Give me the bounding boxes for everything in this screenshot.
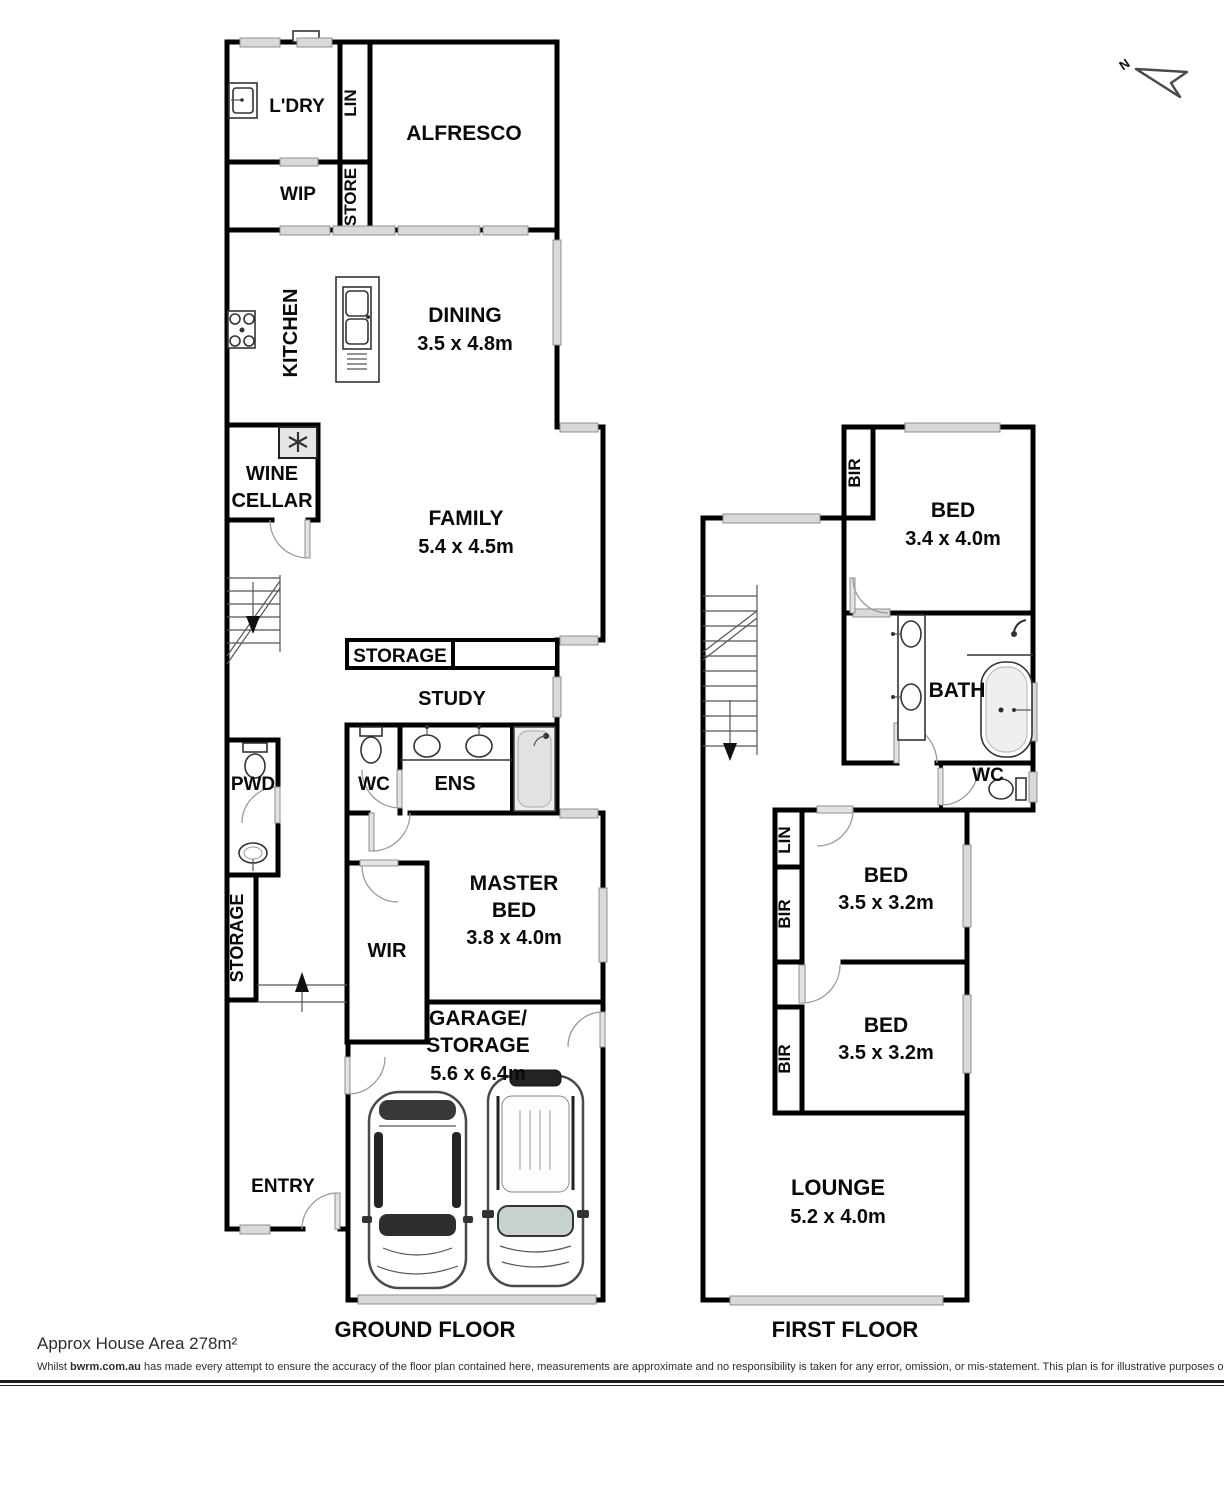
- room-label-bed2: BED: [864, 864, 908, 887]
- room-dims-master: 3.8 x 4.0m: [466, 927, 562, 949]
- bed2-door: [817, 806, 853, 846]
- wir-door: [360, 860, 398, 902]
- room-label-master-bed: BED: [492, 899, 536, 922]
- entry-steps-icon: [257, 972, 347, 1012]
- wine-fridge-icon: [279, 427, 317, 458]
- toilet-icon: [360, 727, 382, 763]
- room-dims-bed1: 3.4 x 4.0m: [905, 528, 1001, 550]
- room-label-bir2: BIR: [775, 899, 794, 928]
- car-suv-icon: [482, 1070, 589, 1286]
- bed1-door: [850, 578, 888, 613]
- room-dims-dining: 3.5 x 4.8m: [417, 333, 513, 355]
- room-label-pwd: PWD: [231, 774, 275, 795]
- room-label-storage-box: STORAGE: [353, 646, 447, 667]
- room-label-alfresco: ALFRESCO: [406, 122, 522, 145]
- master-hall-door: [369, 813, 410, 851]
- first-floor-plan: BIR BED 3.4 x 4.0m BATH WC LIN BIR BED 3…: [703, 423, 1037, 1342]
- staircase-first-floor-icon: [703, 585, 757, 761]
- garage-side-door: [568, 1012, 605, 1047]
- car-sedan-icon: [362, 1092, 473, 1288]
- north-label: N: [1116, 55, 1132, 73]
- room-label-garage-storage: STORAGE: [426, 1034, 529, 1057]
- room-label-study: STUDY: [418, 688, 486, 710]
- garage-internal-door: [345, 1057, 385, 1094]
- house-area-note: Approx House Area 278m²: [37, 1334, 1207, 1354]
- room-label-wc-ff: WC: [972, 765, 1004, 786]
- room-label-bir1: BIR: [845, 458, 864, 487]
- garage-door: [358, 1295, 596, 1304]
- room-dims-bed3: 3.5 x 3.2m: [838, 1042, 934, 1064]
- room-label-bed1: BED: [931, 499, 975, 522]
- room-label-lounge: LOUNGE: [791, 1175, 885, 1200]
- ensuite-shower-icon: [514, 727, 555, 811]
- shower-head-icon: [1011, 620, 1026, 637]
- room-label-bir3: BIR: [775, 1044, 794, 1073]
- room-label-storage-side: STORAGE: [227, 894, 247, 983]
- room-label-wip: WIP: [280, 184, 316, 205]
- footer-rule-thick: [0, 1380, 1224, 1383]
- room-label-lin: LIN: [341, 89, 360, 116]
- room-label-ens: ENS: [434, 773, 475, 795]
- island-bench-icon: [336, 277, 379, 382]
- room-label-wir: WIR: [368, 940, 407, 962]
- room-label-bed3: BED: [864, 1014, 908, 1037]
- room-dims-garage: 5.6 x 6.4m: [430, 1063, 526, 1085]
- bathtub-icon: [981, 662, 1032, 757]
- room-label-bath: BATH: [929, 679, 986, 702]
- room-label-store: STORE: [341, 168, 360, 226]
- disclaimer-brand: bwrm.com.au: [70, 1361, 141, 1373]
- room-label-cellar: CELLAR: [231, 490, 313, 512]
- stove-icon: [228, 311, 255, 348]
- first-floor-doors: [799, 578, 978, 1003]
- room-label-garage: GARAGE/: [429, 1007, 527, 1030]
- footer: Approx House Area 278m² Whilst bwrm.com.…: [37, 1334, 1207, 1373]
- disclaimer-prefix: Whilst: [37, 1361, 70, 1373]
- room-dims-lounge: 5.2 x 4.0m: [790, 1206, 886, 1228]
- bath-vanity-icon: [891, 615, 925, 740]
- room-label-lin-ff: LIN: [775, 826, 794, 853]
- room-dims-bed2: 3.5 x 3.2m: [838, 892, 934, 914]
- room-label-ldry: L'DRY: [269, 96, 325, 117]
- room-label-dining: DINING: [428, 304, 502, 327]
- room-label-wc: WC: [358, 774, 390, 795]
- disclaimer-rest: has made every attempt to ensure the acc…: [141, 1361, 1224, 1373]
- front-door: [302, 1193, 340, 1229]
- ground-floor-plan: L'DRY LIN ALFRESCO WIP STORE KITCHEN DIN…: [227, 31, 607, 1342]
- room-dims-family: 5.4 x 4.5m: [418, 536, 514, 558]
- bed3-door: [799, 965, 840, 1003]
- room-label-entry: ENTRY: [251, 1176, 315, 1197]
- north-arrow-icon: N: [1116, 55, 1187, 97]
- ensuite-basins-icon: [414, 725, 492, 757]
- room-label-family: FAMILY: [428, 507, 503, 530]
- wine-cellar-door: [270, 520, 310, 558]
- room-label-wine: WINE: [246, 463, 298, 485]
- floor-plan-page: L'DRY LIN ALFRESCO WIP STORE KITCHEN DIN…: [0, 0, 1224, 1500]
- staircase-down-icon: [227, 575, 280, 664]
- footer-rule-thin: [0, 1385, 1224, 1386]
- disclaimer-text: Whilst bwrm.com.au has made every attemp…: [37, 1361, 1207, 1373]
- laundry-sink-icon: [229, 83, 257, 118]
- floor-plan-svg: L'DRY LIN ALFRESCO WIP STORE KITCHEN DIN…: [0, 0, 1224, 1386]
- room-label-master: MASTER: [470, 872, 559, 895]
- pwd-basin-icon: [239, 843, 267, 871]
- pwd-toilet-icon: [243, 743, 267, 778]
- room-label-kitchen: KITCHEN: [280, 289, 302, 378]
